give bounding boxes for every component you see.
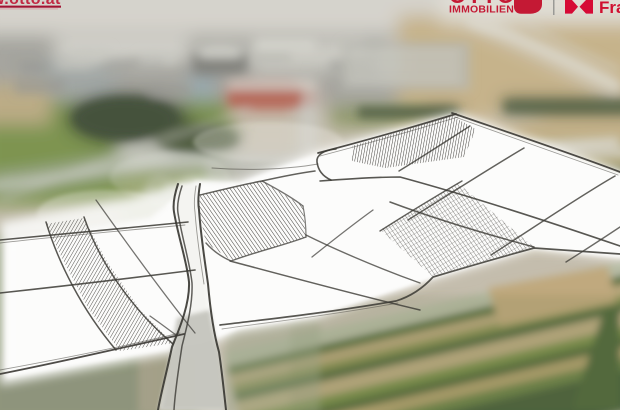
svg-text:Fra: Fra <box>599 0 620 17</box>
svg-text:IMMOBILIEN: IMMOBILIEN <box>449 4 514 16</box>
